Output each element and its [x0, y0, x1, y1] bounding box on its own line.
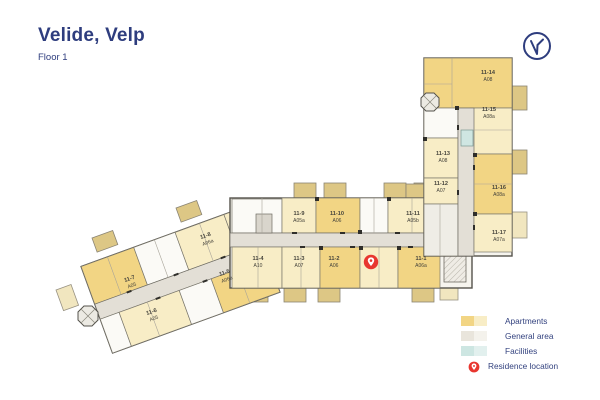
legend-item-general-area: General area	[460, 328, 590, 343]
legend: Apartments General area Facilities Resid…	[460, 313, 590, 373]
apartment-label-11-9[interactable]: 11-9A05a	[293, 211, 305, 225]
legend-label-general-area: General area	[505, 331, 553, 341]
general-swatch-dark	[461, 331, 474, 341]
legend-label-residence-location: Residence location	[488, 361, 558, 371]
apartment-label-11-16[interactable]: 11-16A08a	[492, 185, 506, 199]
general-swatch-light	[474, 331, 487, 341]
floorplan-page: Velide, Velp Floor 1	[0, 0, 600, 400]
apartment-label-11-15[interactable]: 11-15A08a	[482, 107, 496, 121]
legend-pin-icon	[468, 360, 480, 372]
apartment-label-11-4[interactable]: 11-4A10	[253, 256, 264, 270]
facilities-swatch-light	[474, 346, 487, 356]
apartment-label-11-2[interactable]: 11-2A06	[329, 256, 340, 270]
legend-item-residence-location: Residence location	[460, 358, 590, 373]
corridor-central	[230, 233, 442, 247]
legend-label-facilities: Facilities	[505, 346, 537, 356]
elevator	[256, 214, 272, 233]
facilities-swatch-dark	[461, 346, 474, 356]
apartments-swatch-dark	[461, 316, 474, 326]
apartments-swatch-light	[474, 316, 487, 326]
room-11-2[interactable]	[320, 247, 360, 288]
apartment-label-11-1[interactable]: 11-1A06a	[415, 256, 427, 270]
apartment-label-11-12[interactable]: 11-12A07	[434, 181, 448, 195]
legend-label-apartments: Apartments	[505, 316, 547, 326]
apartment-label-11-13[interactable]: 11-13A08	[436, 151, 450, 165]
stair-tower-right	[421, 93, 439, 111]
apartment-label-11-11[interactable]: 11-11A05b	[406, 211, 420, 225]
facility-room	[461, 130, 473, 146]
apartment-label-11-14[interactable]: 11-14A08	[481, 70, 495, 84]
legend-item-facilities: Facilities	[460, 343, 590, 358]
residence-location-pin[interactable]	[363, 254, 379, 270]
apartment-label-11-17[interactable]: 11-17A07a	[492, 230, 506, 244]
apartment-label-11-3[interactable]: 11-3A07	[294, 256, 305, 270]
stair-tower-left	[78, 306, 98, 326]
legend-item-apartments: Apartments	[460, 313, 590, 328]
apartment-label-11-10[interactable]: 11-10A06	[330, 211, 344, 225]
